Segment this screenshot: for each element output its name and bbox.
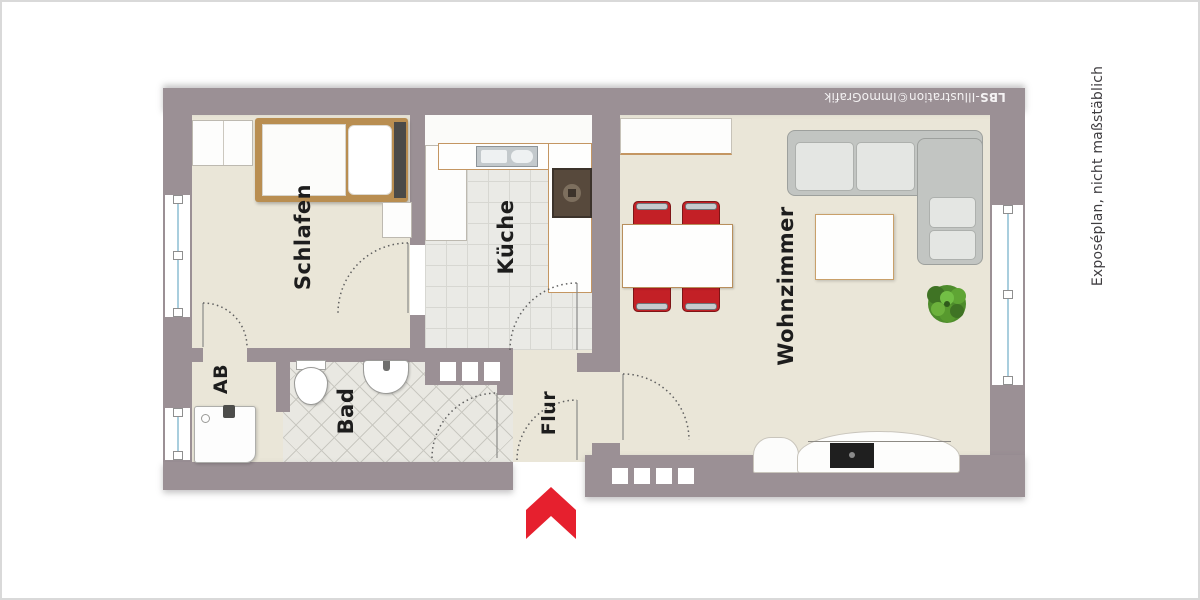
kitchen-sink (476, 146, 538, 167)
window-bad (165, 408, 190, 460)
bed-headboard (394, 122, 406, 198)
sink-basin (481, 150, 507, 163)
window-schlafen (165, 195, 190, 317)
kitchen-wall-cabinets (425, 115, 592, 146)
tv-logo-dot (849, 452, 855, 458)
window-handle (173, 251, 183, 260)
watermark-brand: LBS (980, 90, 1006, 104)
sofa-cushion (795, 142, 854, 191)
disclaimer-text: Exposéplan, nicht maßstäblich (1090, 66, 1106, 286)
wall-schlafen-kueche-upper (410, 115, 425, 245)
bed-pillow (348, 125, 392, 195)
kitchen-right-counter (548, 143, 592, 293)
corner-sofa-vertical (917, 138, 983, 265)
wall-kueche-flur-stub (577, 353, 592, 372)
room-label-schlafen: Schlafen (291, 184, 315, 290)
washbasin-faucet (383, 361, 390, 371)
entrance-arrow-icon (526, 487, 576, 539)
chair-rail (636, 203, 668, 210)
glass-block (634, 468, 650, 484)
wall-ab-bad (276, 355, 290, 412)
chair-rail (685, 303, 717, 310)
shower-fixture (223, 405, 235, 418)
watermark-rest: -Illustration©ImmoGrafik (824, 90, 980, 104)
tv-screen (830, 443, 874, 468)
wall-bottom-left (163, 462, 513, 490)
shower (194, 406, 256, 463)
glass-block (678, 468, 694, 484)
sink-basin (511, 150, 533, 163)
glass-block (462, 362, 478, 381)
wardrobe-divider (223, 121, 224, 165)
wardrobe (192, 120, 253, 166)
bed (255, 118, 408, 202)
floorplan-canvas: Schlafen Küche Wohnzimmer Bad AB Flur Ex… (0, 0, 1200, 600)
sideboard (620, 118, 732, 155)
watermark-text: LBS-Illustration©ImmoGrafik (824, 90, 1006, 104)
tv-lowboard (797, 431, 960, 473)
room-label-bad: Bad (334, 388, 358, 435)
window-handle (173, 451, 183, 460)
chair-rail (685, 203, 717, 210)
window-handle (1003, 376, 1013, 385)
room-label-ab: AB (210, 364, 232, 394)
dining-table (622, 224, 733, 288)
stove (552, 168, 592, 218)
wall-schlafen-bottom-a (192, 348, 203, 362)
glass-block (440, 362, 456, 381)
sofa-cushion (929, 230, 976, 260)
glass-block (612, 468, 628, 484)
wall-kueche-wohnzimmer (592, 115, 620, 372)
nightstand (382, 202, 412, 238)
room-label-kueche: Küche (494, 200, 518, 275)
window-wohnzimmer (992, 205, 1023, 385)
glass-block (484, 362, 500, 381)
tv-lowboard-left (753, 437, 799, 473)
tv-shelf-line (808, 441, 951, 442)
sofa-cushion (856, 142, 915, 191)
room-label-wohnzimmer: Wohnzimmer (774, 206, 798, 366)
wall-bad-flur (497, 385, 513, 395)
room-label-flur: Flur (538, 391, 560, 435)
stove-knob (568, 189, 576, 197)
chair-rail (636, 303, 668, 310)
window-handle (1003, 205, 1013, 214)
shower-drain (201, 414, 210, 423)
glass-block (656, 468, 672, 484)
coffee-table (815, 214, 894, 280)
sofa-cushion (929, 197, 976, 228)
wall-entrance-notch (592, 443, 620, 467)
window-handle (173, 195, 183, 204)
window-handle (173, 408, 183, 417)
window-handle (173, 308, 183, 317)
window-handle (1003, 290, 1013, 299)
